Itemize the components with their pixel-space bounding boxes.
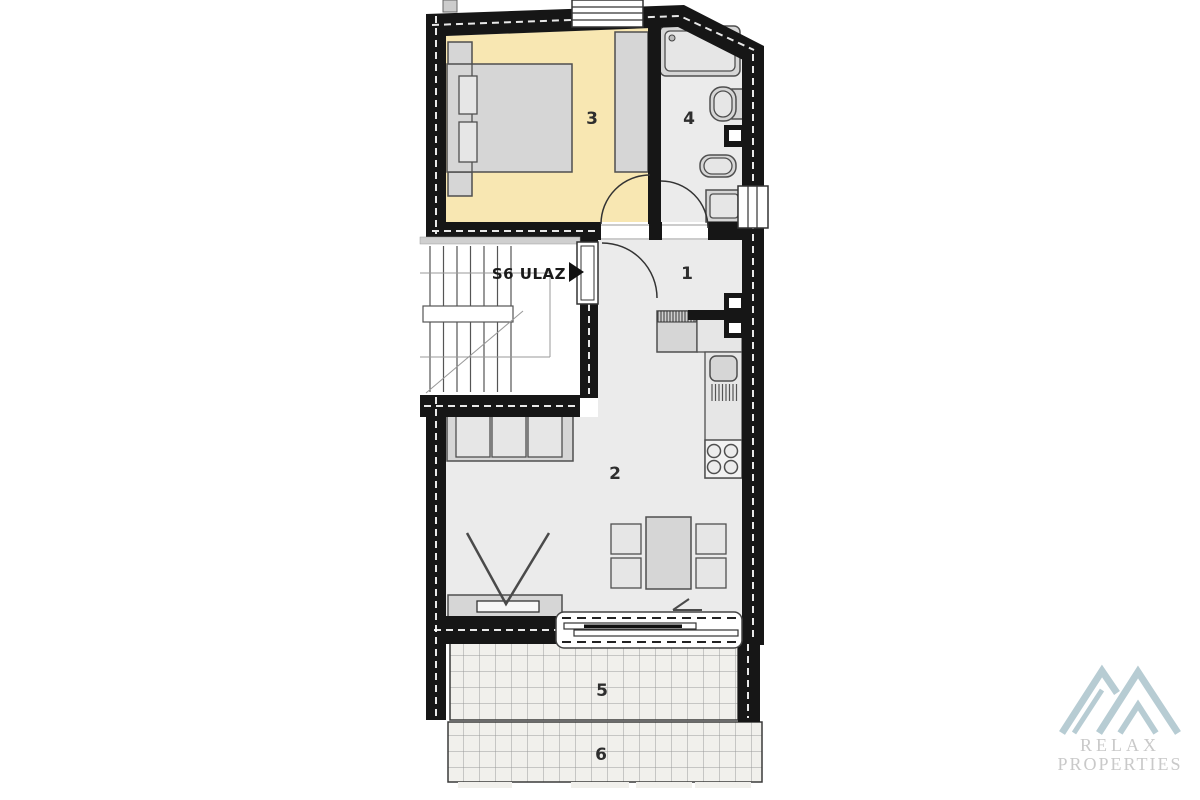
washing-machine [706, 190, 742, 222]
wardrobe [615, 32, 648, 172]
bedroom-window [572, 0, 643, 27]
bed [447, 64, 572, 172]
nightstand [448, 172, 472, 196]
chair [696, 524, 726, 554]
bathroom-window [738, 186, 768, 228]
room-label-terrace: 5 [596, 681, 608, 701]
logo-text-relax: RELAX [1048, 736, 1192, 755]
mountains-logo-icon [1059, 664, 1181, 736]
floor-plan: 3 4 1 2 5 6 S6 ULAZ [0, 0, 1200, 800]
room-label-bathroom: 4 [683, 109, 695, 129]
terrace-upper [450, 640, 738, 720]
entrance-label: S6 ULAZ [492, 265, 566, 283]
dining-table [646, 517, 691, 589]
watermark-logo: RELAX PROPERTIES [1048, 664, 1192, 774]
entrance-marker: S6 ULAZ [492, 262, 584, 283]
kitchen-sink [710, 356, 737, 381]
nightstand [448, 42, 472, 65]
tv-stand [448, 595, 562, 618]
sliding-terrace-door [556, 612, 742, 648]
chair [611, 524, 641, 554]
chair [696, 558, 726, 588]
sink [700, 155, 736, 177]
room-label-bedroom: 3 [586, 109, 598, 129]
room-label-hallway: 1 [681, 264, 693, 284]
logo-text-properties: PROPERTIES [1048, 755, 1192, 774]
toilet [710, 87, 743, 121]
wall-stub [443, 0, 457, 12]
chair [611, 558, 641, 588]
room-label-living: 2 [609, 464, 621, 484]
stove [705, 440, 742, 478]
room-label-lower-terrace: 6 [595, 745, 607, 765]
